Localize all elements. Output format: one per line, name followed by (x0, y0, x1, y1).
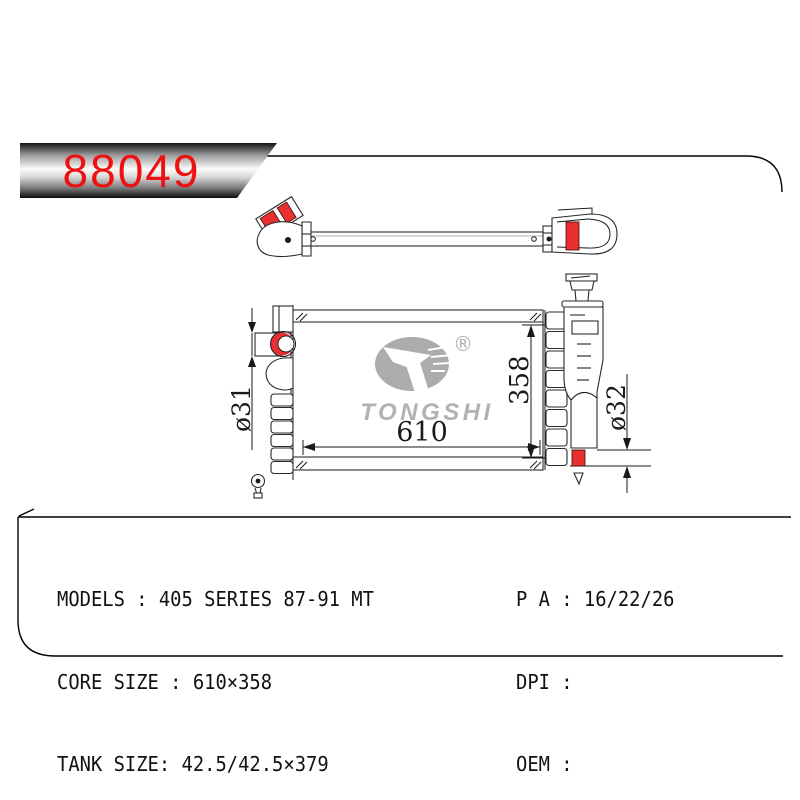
dimension-outlet-diameter: ø32 (602, 374, 631, 493)
spec-tank-size: TANK SIZE: 42.5/42.5×379 (57, 751, 374, 779)
spec-dpi: DPI : (516, 669, 674, 697)
registered-trademark-icon: ® (453, 332, 473, 356)
dimension-inlet-diameter: ø31 (227, 308, 256, 450)
left-tank-ribs (271, 394, 293, 474)
svg-text:610: 610 (396, 417, 448, 448)
right-bracket-top-view (543, 208, 617, 254)
catalog-page: ® TONGSHI ø31 ø32 (0, 0, 800, 800)
crossflow-tube (306, 232, 546, 246)
radiator-top-view (256, 197, 617, 257)
expansion-tank (562, 274, 651, 484)
svg-text:358: 358 (505, 355, 535, 405)
spec-oem: OEM : (516, 751, 674, 779)
spec-models: MODELS : 405 SERIES 87-91 MT (57, 586, 374, 614)
filler-cap (562, 274, 603, 307)
spec-core-size: CORE SIZE : 610×358 (57, 669, 374, 697)
inlet-pipe-top-view (256, 197, 311, 257)
radiator-front-view: ® TONGSHI ø31 ø32 (227, 274, 651, 498)
outlet-pipe (570, 450, 651, 484)
spec-table-right: P A : 16/22/26 DPI : OEM : NISSENS: (516, 531, 674, 800)
part-number: 88049 (63, 148, 201, 194)
inlet-pipe (255, 332, 296, 357)
svg-text:ø32: ø32 (602, 384, 631, 431)
svg-text:ø31: ø31 (227, 385, 256, 432)
part-number-banner: 88049 (20, 143, 277, 198)
spec-pa: P A : 16/22/26 (516, 586, 674, 614)
spec-table-left: MODELS : 405 SERIES 87-91 MT CORE SIZE :… (57, 531, 374, 800)
left-tank (252, 305, 296, 498)
drain-plug (252, 475, 265, 499)
